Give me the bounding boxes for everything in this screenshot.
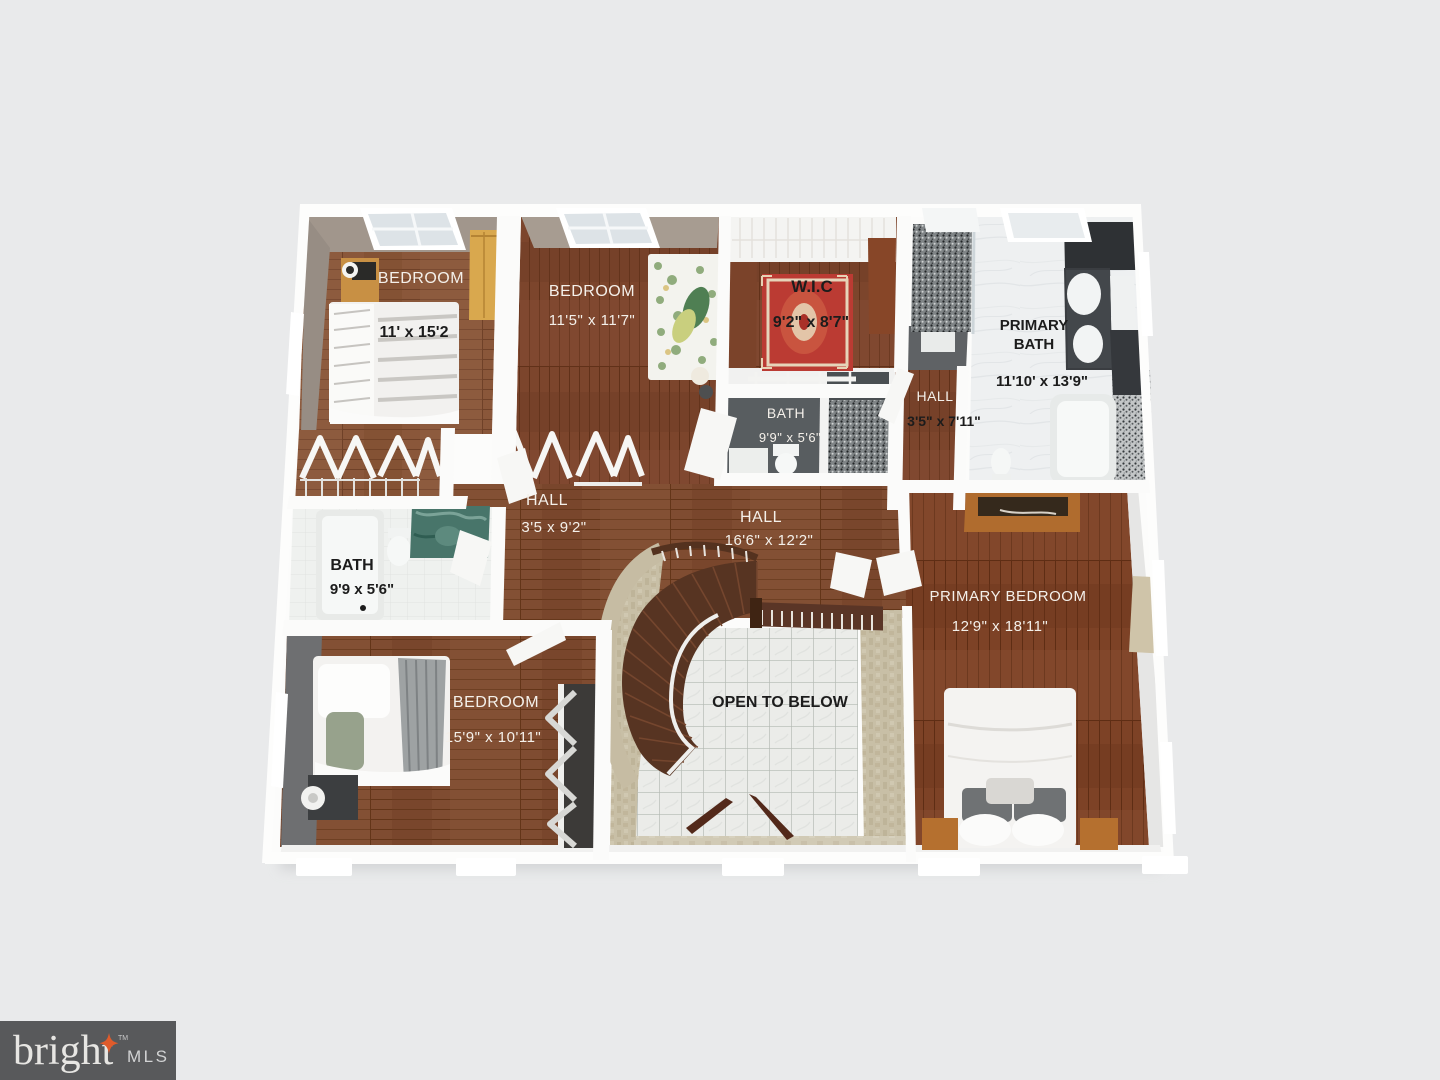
svg-text:BATH: BATH: [767, 405, 805, 421]
svg-text:11'5" x 11'7": 11'5" x 11'7": [549, 312, 636, 329]
svg-text:9'2" x 8'7": 9'2" x 8'7": [773, 314, 849, 331]
svg-text:PRIMARY: PRIMARY: [1000, 317, 1069, 334]
svg-text:MLS: MLS: [127, 1047, 169, 1066]
svg-text:BATH: BATH: [330, 557, 373, 574]
svg-text:TM: TM: [118, 1035, 128, 1042]
svg-text:PRIMARY BEDROOM: PRIMARY BEDROOM: [930, 588, 1087, 605]
svg-text:W.I.C: W.I.C: [791, 277, 833, 296]
svg-text:OPEN TO BELOW: OPEN TO BELOW: [712, 694, 849, 711]
svg-text:BEDROOM: BEDROOM: [453, 694, 539, 711]
svg-text:BEDROOM: BEDROOM: [378, 270, 464, 287]
svg-text:3'5" x 7'11": 3'5" x 7'11": [907, 413, 981, 429]
svg-text:HALL: HALL: [740, 509, 782, 526]
svg-text:9'9 x 5'6": 9'9 x 5'6": [330, 581, 394, 598]
svg-text:15'9" x 10'11": 15'9" x 10'11": [445, 729, 542, 746]
svg-text:bright: bright: [13, 1028, 114, 1074]
svg-text:11' x 15'2: 11' x 15'2: [379, 324, 448, 341]
svg-text:9'9" x 5'6": 9'9" x 5'6": [759, 430, 821, 445]
svg-text:12'9" x 18'11": 12'9" x 18'11": [952, 618, 1049, 635]
svg-text:BATH: BATH: [1014, 336, 1055, 353]
svg-text:BEDROOM: BEDROOM: [549, 283, 635, 300]
svg-text:HALL: HALL: [916, 388, 953, 404]
svg-text:3'5 x 9'2": 3'5 x 9'2": [521, 519, 586, 536]
svg-text:11'10' x 13'9": 11'10' x 13'9": [996, 373, 1088, 390]
svg-text:16'6" x 12'2": 16'6" x 12'2": [725, 532, 814, 549]
svg-text:HALL: HALL: [526, 492, 568, 509]
